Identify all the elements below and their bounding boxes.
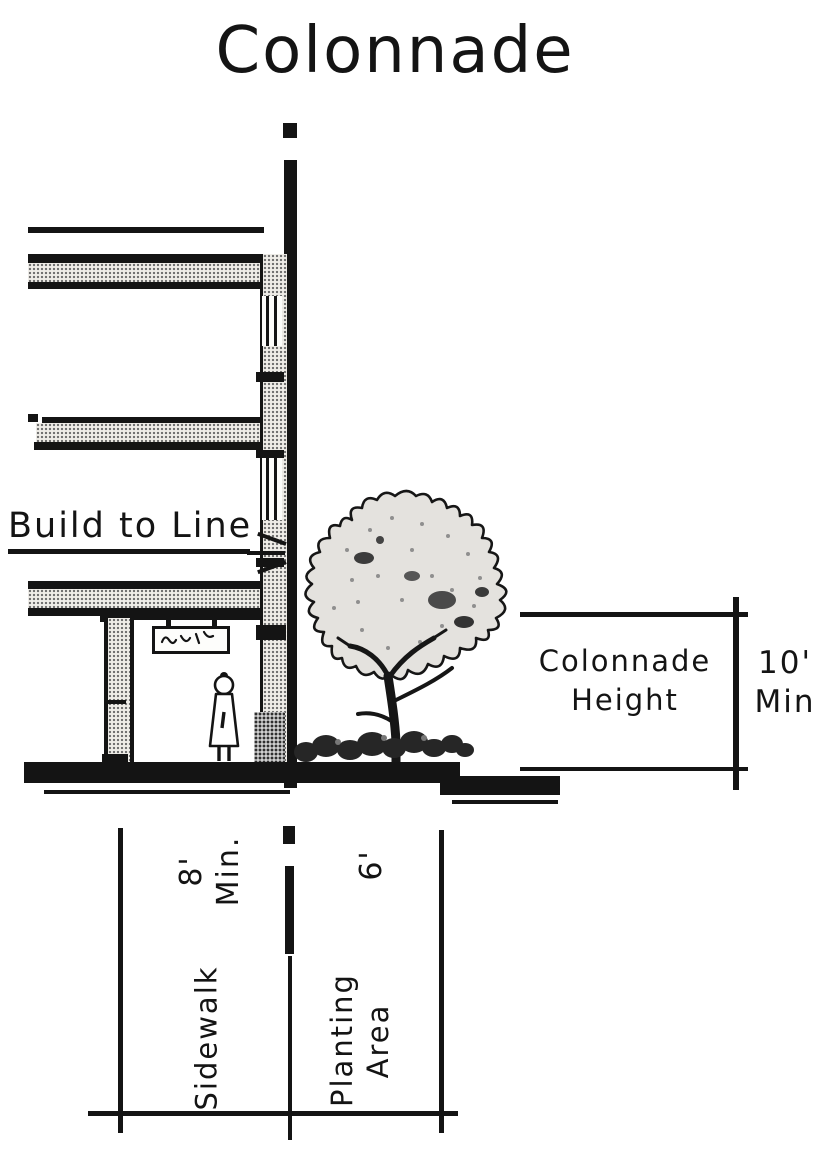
height-dim-top-line — [520, 612, 748, 617]
glazing-line — [274, 458, 277, 520]
mid-slab-bottom-line — [34, 442, 284, 450]
build-to-line-underline — [8, 549, 250, 554]
height-dim-vertical — [733, 597, 739, 790]
ground-underline-left — [44, 790, 290, 794]
person-figure — [202, 670, 246, 768]
ground-underline-street — [452, 800, 558, 804]
planting-extension-line — [439, 830, 444, 1133]
width-dim-horizontal — [88, 1111, 458, 1116]
height-dim-bottom-line — [520, 767, 748, 771]
lower-window-glazing — [262, 458, 282, 520]
roof-slab-thick-line — [28, 254, 284, 263]
sidewalk-label: Sidewalk — [189, 966, 225, 1111]
build-to-line-arrow-shaft — [247, 551, 285, 555]
height-value: 10' — [752, 644, 818, 683]
page-title: Colonnade — [0, 14, 790, 88]
height-qualifier: Min — [752, 683, 818, 722]
colonnade-diagram: Colonnade Build to Line — [0, 0, 823, 1156]
wall-joint — [256, 450, 284, 458]
person-legs — [219, 746, 229, 761]
canopy-slab-bottom-line — [28, 608, 284, 616]
sidewalk-width-value: 8' Min. — [173, 821, 247, 921]
build-to-line-label: Build to Line — [8, 506, 252, 546]
person-head — [215, 676, 233, 694]
colonnade-height-label-line2: Height — [535, 681, 715, 720]
street-tree — [292, 480, 536, 782]
sidewalk-value: 8' — [173, 821, 210, 921]
glazing-line — [274, 296, 277, 346]
glazing-line — [266, 458, 269, 520]
storefront-base-block — [254, 712, 285, 764]
planting-area-label: Planting Area — [324, 975, 398, 1107]
mid-slab-left-dot — [28, 414, 38, 422]
column-joint — [104, 700, 126, 704]
sign-scribble — [154, 628, 226, 650]
planting-label-line1: Planting — [324, 975, 360, 1107]
property-line-below-thick — [285, 866, 294, 954]
wall-joint — [256, 625, 286, 640]
roof-slab-fill — [28, 263, 284, 282]
canopy-slab-fill — [28, 589, 284, 608]
planting-label-line2: Area — [360, 975, 396, 1107]
hanging-sign — [152, 626, 230, 654]
tree-canopy — [305, 491, 506, 679]
colonnade-height-label: Colonnade Height — [535, 642, 715, 720]
roof-slab-top-line — [28, 227, 264, 233]
glazing-line — [266, 296, 269, 346]
ground-line-main — [24, 762, 448, 783]
colonnade-height-label-line1: Colonnade — [535, 642, 715, 681]
property-line-top-dash — [283, 123, 297, 138]
wall-joint — [256, 372, 284, 382]
planting-width-value: 6' — [354, 835, 390, 895]
property-line-below-dot — [283, 826, 295, 844]
planting-shrubs — [294, 731, 474, 762]
upper-window-glazing — [262, 296, 282, 346]
person-coat-mark — [222, 712, 224, 728]
colonnade-column — [104, 618, 134, 764]
ground-line-street — [448, 776, 560, 795]
canopy-slab-top-line — [28, 581, 284, 589]
roof-slab-bottom-line — [28, 282, 284, 289]
sidewalk-qualifier: Min. — [210, 821, 247, 921]
mid-slab-fill — [36, 423, 284, 442]
colonnade-height-value: 10' Min — [752, 644, 818, 722]
sidewalk-extension-line — [118, 828, 123, 1133]
